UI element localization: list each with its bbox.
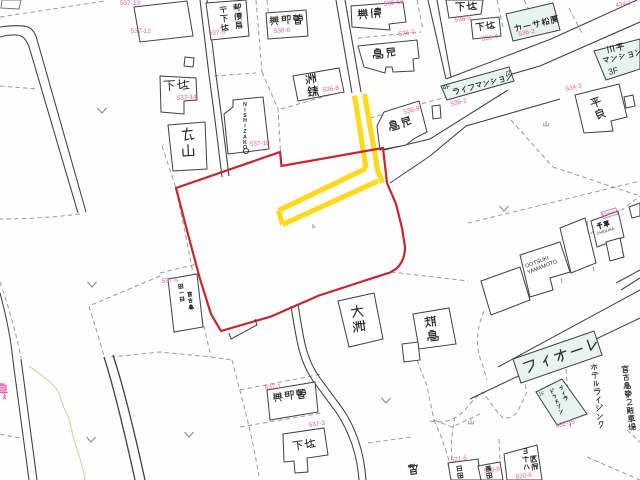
svg-text:O: O [243,145,247,151]
svg-text:537-14: 537-14 [177,94,198,102]
svg-text:536-6: 536-6 [274,27,291,35]
svg-text:537-13: 537-13 [120,0,140,7]
svg-text:537-10: 537-10 [250,140,271,148]
svg-text:520-6: 520-6 [515,472,533,480]
svg-text:537-12: 537-12 [131,28,151,35]
